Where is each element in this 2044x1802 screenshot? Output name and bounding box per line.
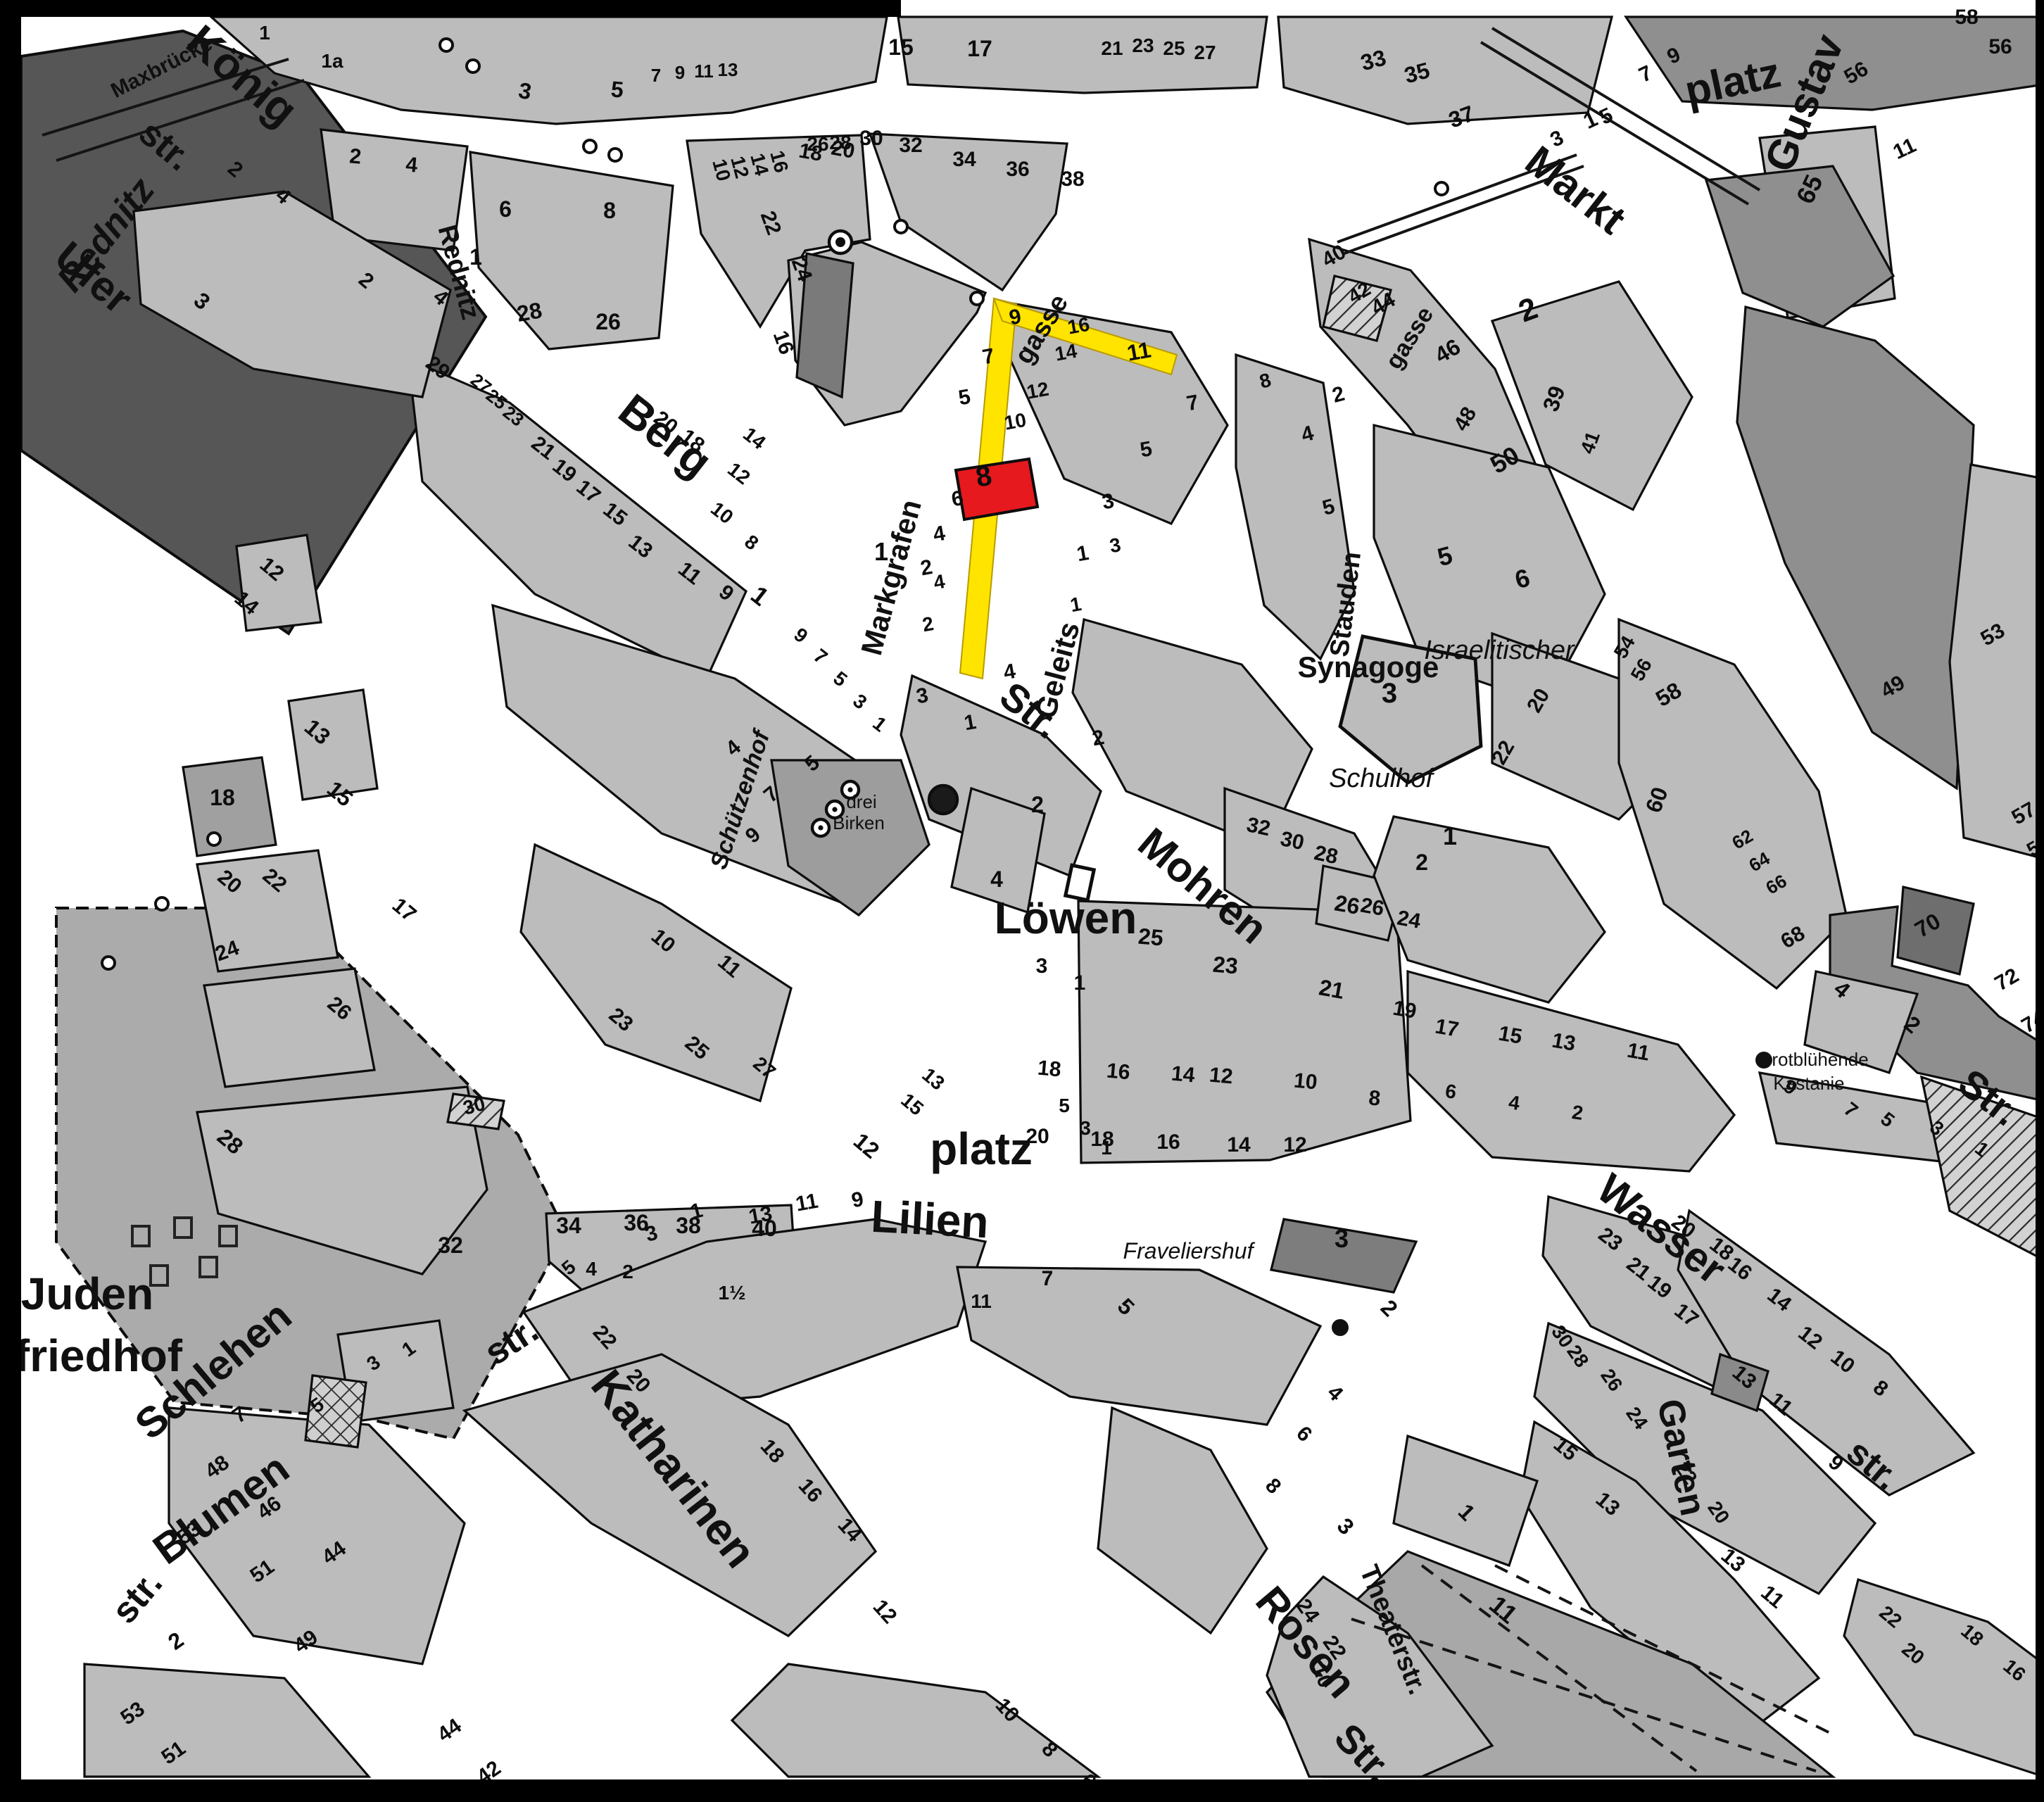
building-block (204, 969, 374, 1087)
scan-border (0, 0, 901, 17)
tree-center-icon (832, 807, 837, 812)
house-number: 11 (1625, 1039, 1651, 1066)
survey-node-icon (895, 220, 907, 233)
house-number: 27 (1194, 42, 1216, 63)
house-number: 13 (747, 1202, 774, 1228)
house-number: 32 (1244, 813, 1273, 840)
house-number: 20 (1026, 1125, 1049, 1148)
house-number: 12 (1025, 378, 1050, 403)
street-label: Synagoge (1298, 650, 1439, 683)
house-number: 2 (348, 144, 362, 168)
house-number: 56 (1988, 35, 2012, 58)
house-number: 2 (622, 1261, 633, 1283)
tree-center-icon (835, 237, 845, 247)
house-number: 15 (1496, 1021, 1524, 1048)
house-number: 25 (1137, 924, 1165, 951)
house-number: 3 (1080, 1117, 1091, 1139)
house-number: 17 (1433, 1014, 1461, 1041)
house-number: 6 (499, 196, 512, 222)
survey-node-icon (440, 39, 453, 51)
street-label: Schulhof (1329, 764, 1435, 793)
survey-node-icon (102, 957, 115, 969)
house-number: 4 (586, 1258, 597, 1280)
survey-node-icon (1435, 182, 1448, 195)
street-label: drei (846, 791, 876, 812)
scan-border (2036, 0, 2044, 1802)
house-number: 7 (651, 65, 661, 86)
street-label: Juden (21, 1268, 153, 1319)
house-number: 1 (259, 22, 270, 44)
house-number: 38 (1061, 168, 1084, 191)
house-number: 14 (1053, 340, 1078, 365)
survey-node-icon (583, 140, 596, 153)
house-number: 23 (1212, 952, 1239, 979)
house-number: 13 (1550, 1028, 1577, 1055)
city-map-scan: MaxbrückeRednitzKönigstr.UferRednitzBerg… (0, 0, 2044, 1802)
street-label: Lilien (870, 1191, 990, 1248)
house-number: 1 (1101, 1137, 1112, 1159)
house-number: 2 (1031, 792, 1044, 817)
house-number: 26 (807, 133, 828, 155)
house-number: 5 (1059, 1095, 1070, 1116)
house-number: 2 (1415, 850, 1428, 875)
scan-border (0, 1779, 2044, 1802)
house-number: 26 (595, 309, 621, 334)
house-number: 3 (1382, 678, 1397, 709)
house-number: 4 (405, 153, 419, 177)
house-number: 16 (1066, 313, 1091, 339)
house-number: 26 (1332, 890, 1361, 919)
map-root: MaxbrückeRednitzKönigstr.UferRednitzBerg… (0, 0, 2044, 1802)
house-number: 14 (1227, 1133, 1251, 1157)
house-number: 10 (1002, 409, 1028, 434)
street-label: Israelitischer (1424, 636, 1575, 665)
house-number: 26 (1358, 893, 1386, 920)
house-number: 14 (1171, 1062, 1196, 1088)
street-label: Löwen (995, 893, 1137, 943)
house-number: 21 (1101, 37, 1123, 59)
house-number: 32 (438, 1233, 463, 1258)
house-number: 36 (1006, 158, 1029, 181)
street-label: Fraveliershuf (1123, 1238, 1256, 1264)
street-label: Birken (833, 812, 885, 833)
house-number: 8 (1368, 1086, 1382, 1110)
house-number: 11 (971, 1290, 992, 1312)
house-number: 32 (899, 134, 922, 157)
house-number: 5 (610, 76, 625, 102)
house-number: 28 (829, 132, 851, 153)
street-label: platz (930, 1123, 1033, 1174)
tree-dot-icon (1755, 1052, 1772, 1069)
house-number: 30 (1278, 827, 1306, 855)
house-number: 34 (952, 148, 976, 171)
house-number: 9 (675, 62, 685, 83)
house-number: 1 (469, 244, 482, 270)
street-label: rotblühende (1772, 1049, 1868, 1070)
house-number: 12 (1209, 1064, 1234, 1089)
house-number: 3 (1335, 1224, 1349, 1253)
map-svg: MaxbrückeRednitzKönigstr.UferRednitzBerg… (0, 0, 2044, 1802)
house-number: 18 (210, 785, 235, 810)
house-number: 28 (1312, 841, 1340, 869)
house-number: 28 (515, 297, 543, 327)
house-number: 12 (1283, 1133, 1306, 1157)
building-block (1950, 465, 2044, 859)
house-number: 1a (321, 50, 343, 72)
survey-node-icon (609, 149, 622, 161)
house-number: 4 (990, 867, 1003, 892)
survey-node-icon (467, 60, 479, 73)
house-number: 11 (694, 61, 714, 82)
house-number: 10 (1293, 1069, 1318, 1095)
house-number: 34 (556, 1213, 581, 1238)
house-number: 30 (859, 127, 883, 150)
house-number: 25 (1163, 37, 1185, 59)
house-number: 1 (1443, 821, 1457, 850)
survey-node-icon (971, 292, 983, 305)
house-number: 17 (967, 36, 992, 61)
house-number: 8 (603, 198, 616, 223)
tree-dot-icon (1332, 1319, 1349, 1336)
house-number: 3 (1036, 954, 1048, 978)
house-number: 1 (874, 537, 888, 566)
house-number: 11 (794, 1190, 820, 1216)
house-number: 23 (1132, 34, 1154, 56)
tree-center-icon (818, 825, 823, 830)
house-number: 7 (1042, 1267, 1054, 1290)
house-number: 21 (1317, 974, 1346, 1004)
street-label: friedhof (15, 1330, 183, 1381)
survey-node-icon (208, 833, 220, 845)
house-number: 19 (1391, 996, 1418, 1023)
house-number: 16 (1106, 1059, 1131, 1085)
house-number: 15 (888, 34, 914, 60)
house-number: 1½ (719, 1282, 746, 1304)
house-number: 1 (1074, 971, 1086, 995)
house-number: 24 (1395, 906, 1422, 933)
scan-border (0, 0, 21, 1802)
survey-node-icon (156, 897, 168, 910)
house-number: 13 (718, 59, 738, 80)
house-number: 58 (1955, 6, 1978, 29)
house-number: 11 (1125, 337, 1153, 366)
tree-ring-icon (929, 786, 957, 814)
house-number: 16 (1156, 1130, 1180, 1154)
house-number: 18 (1037, 1057, 1062, 1082)
